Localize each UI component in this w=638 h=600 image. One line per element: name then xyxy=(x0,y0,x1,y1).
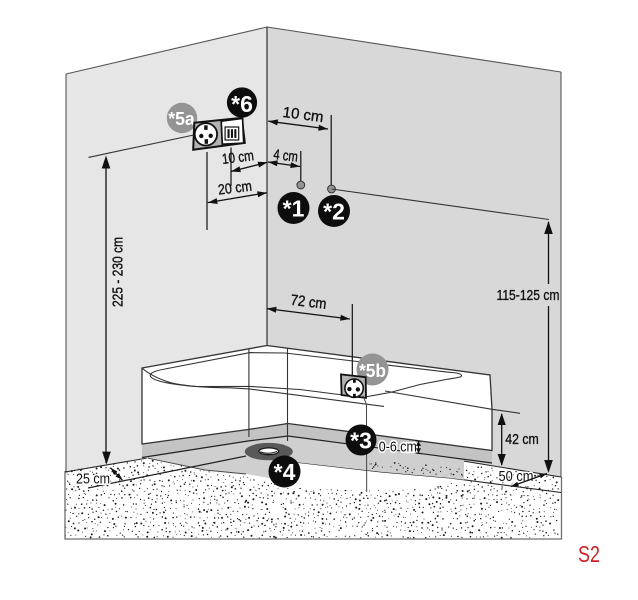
svg-text:*3: *3 xyxy=(350,428,372,454)
svg-text:115-125 cm: 115-125 cm xyxy=(497,287,560,304)
svg-text:*4: *4 xyxy=(274,459,296,485)
svg-text:25 cm: 25 cm xyxy=(76,472,110,488)
svg-text:50 cm: 50 cm xyxy=(499,469,534,485)
svg-text:*1: *1 xyxy=(283,196,305,222)
svg-text:*6: *6 xyxy=(231,91,253,117)
svg-text:*5a: *5a xyxy=(168,108,195,129)
svg-text:225 - 230 cm: 225 - 230 cm xyxy=(110,237,127,307)
svg-text:0-6 cm: 0-6 cm xyxy=(379,439,417,456)
svg-text:42 cm: 42 cm xyxy=(505,431,539,448)
svg-text:*2: *2 xyxy=(323,199,345,225)
